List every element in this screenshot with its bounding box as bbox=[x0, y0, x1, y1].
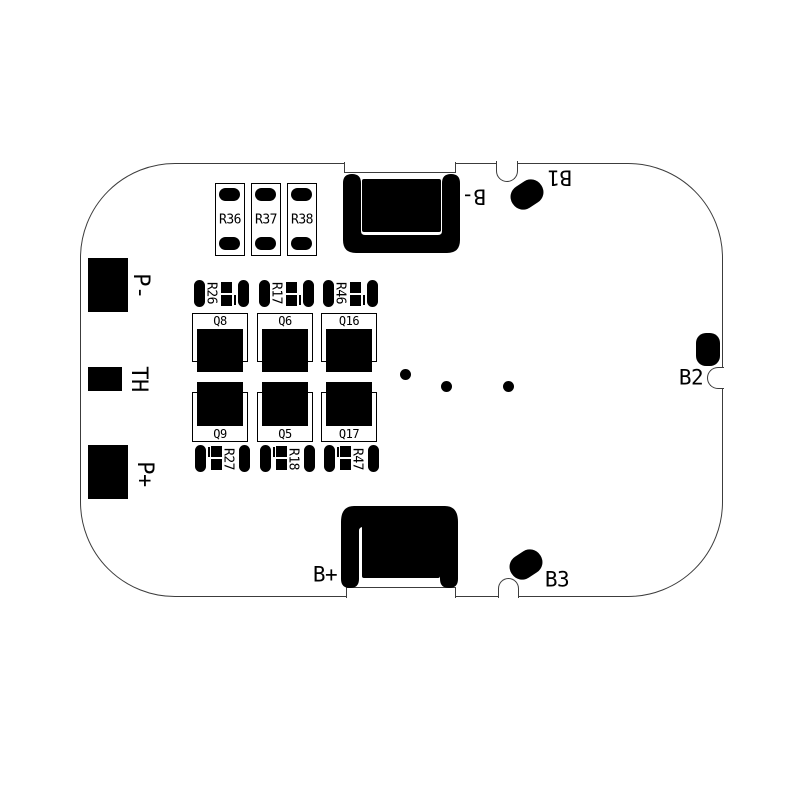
resistor-pad bbox=[291, 237, 312, 250]
pad-th bbox=[88, 367, 122, 391]
label-q16: Q16 bbox=[339, 315, 359, 327]
resistor-pad bbox=[255, 188, 276, 201]
smd-pad bbox=[367, 280, 378, 307]
fet-q8-body bbox=[197, 329, 243, 372]
smd-pad bbox=[286, 295, 297, 306]
label-q17: Q17 bbox=[339, 428, 359, 440]
smd-pad bbox=[303, 280, 314, 307]
label-r37: R37 bbox=[255, 214, 277, 227]
right-edge-slot-notch bbox=[707, 367, 724, 389]
pad-b2 bbox=[696, 333, 720, 366]
smd-pad bbox=[350, 282, 361, 293]
pad-b-plus-plate bbox=[362, 525, 440, 578]
smd-pad bbox=[350, 295, 361, 306]
label-p-plus: P+ bbox=[133, 461, 155, 487]
resistor-pad bbox=[219, 237, 240, 250]
label-r38: R38 bbox=[291, 214, 313, 227]
smd-pad bbox=[221, 295, 232, 306]
silk-tick bbox=[337, 447, 339, 457]
fet-q16-body bbox=[326, 329, 372, 372]
pad-b-minus-plate bbox=[362, 179, 441, 232]
via-dot bbox=[441, 381, 452, 392]
smd-pad bbox=[368, 445, 379, 472]
label-b-minus: B- bbox=[462, 186, 486, 207]
label-b1: B1 bbox=[548, 167, 572, 188]
pad-p-minus bbox=[88, 258, 128, 312]
smd-pad bbox=[324, 445, 335, 472]
bottom-edge-recess bbox=[346, 587, 456, 598]
label-q5: Q5 bbox=[278, 428, 291, 440]
label-r47: R47 bbox=[351, 448, 364, 470]
pcb-diagram: P- TH P+ R36 R37 R38 R26 Q8 Q9 R27 R17 bbox=[0, 0, 800, 800]
silk-tick bbox=[234, 295, 236, 305]
smd-pad bbox=[221, 282, 232, 293]
silk-tick bbox=[273, 447, 275, 457]
via-dot bbox=[400, 369, 411, 380]
silk-tick bbox=[363, 295, 365, 305]
label-q8: Q8 bbox=[213, 315, 226, 327]
smd-pad bbox=[304, 445, 315, 472]
pad-p-plus bbox=[88, 445, 128, 499]
label-r36: R36 bbox=[219, 214, 241, 227]
resistor-pad bbox=[219, 188, 240, 201]
smd-pad bbox=[260, 445, 271, 472]
fet-q9-body bbox=[197, 382, 243, 426]
smd-pad bbox=[238, 280, 249, 307]
top-edge-recess bbox=[344, 162, 456, 173]
bottom-edge-slot-notch bbox=[498, 578, 519, 598]
fet-q5-body bbox=[262, 382, 308, 426]
label-r17: R17 bbox=[270, 282, 283, 304]
resistor-pad bbox=[255, 237, 276, 250]
label-b-plus: B+ bbox=[313, 565, 337, 586]
label-th: TH bbox=[127, 366, 149, 392]
label-q9: Q9 bbox=[213, 428, 226, 440]
smd-pad bbox=[239, 445, 250, 472]
label-r27: R27 bbox=[222, 448, 235, 470]
top-edge-slot-notch bbox=[496, 161, 518, 182]
label-b2: B2 bbox=[679, 368, 703, 389]
smd-pad bbox=[195, 445, 206, 472]
label-r46: R46 bbox=[334, 282, 347, 304]
silk-tick bbox=[208, 447, 210, 457]
resistor-pad bbox=[291, 188, 312, 201]
fet-q6-body bbox=[262, 329, 308, 372]
label-q6: Q6 bbox=[278, 315, 291, 327]
label-b3: B3 bbox=[545, 570, 569, 591]
label-r18: R18 bbox=[287, 448, 300, 470]
smd-pad bbox=[286, 282, 297, 293]
label-p-minus: P- bbox=[129, 273, 151, 299]
via-dot bbox=[503, 381, 514, 392]
fet-q17-body bbox=[326, 382, 372, 426]
silk-tick bbox=[299, 295, 301, 305]
label-r26: R26 bbox=[205, 282, 218, 304]
